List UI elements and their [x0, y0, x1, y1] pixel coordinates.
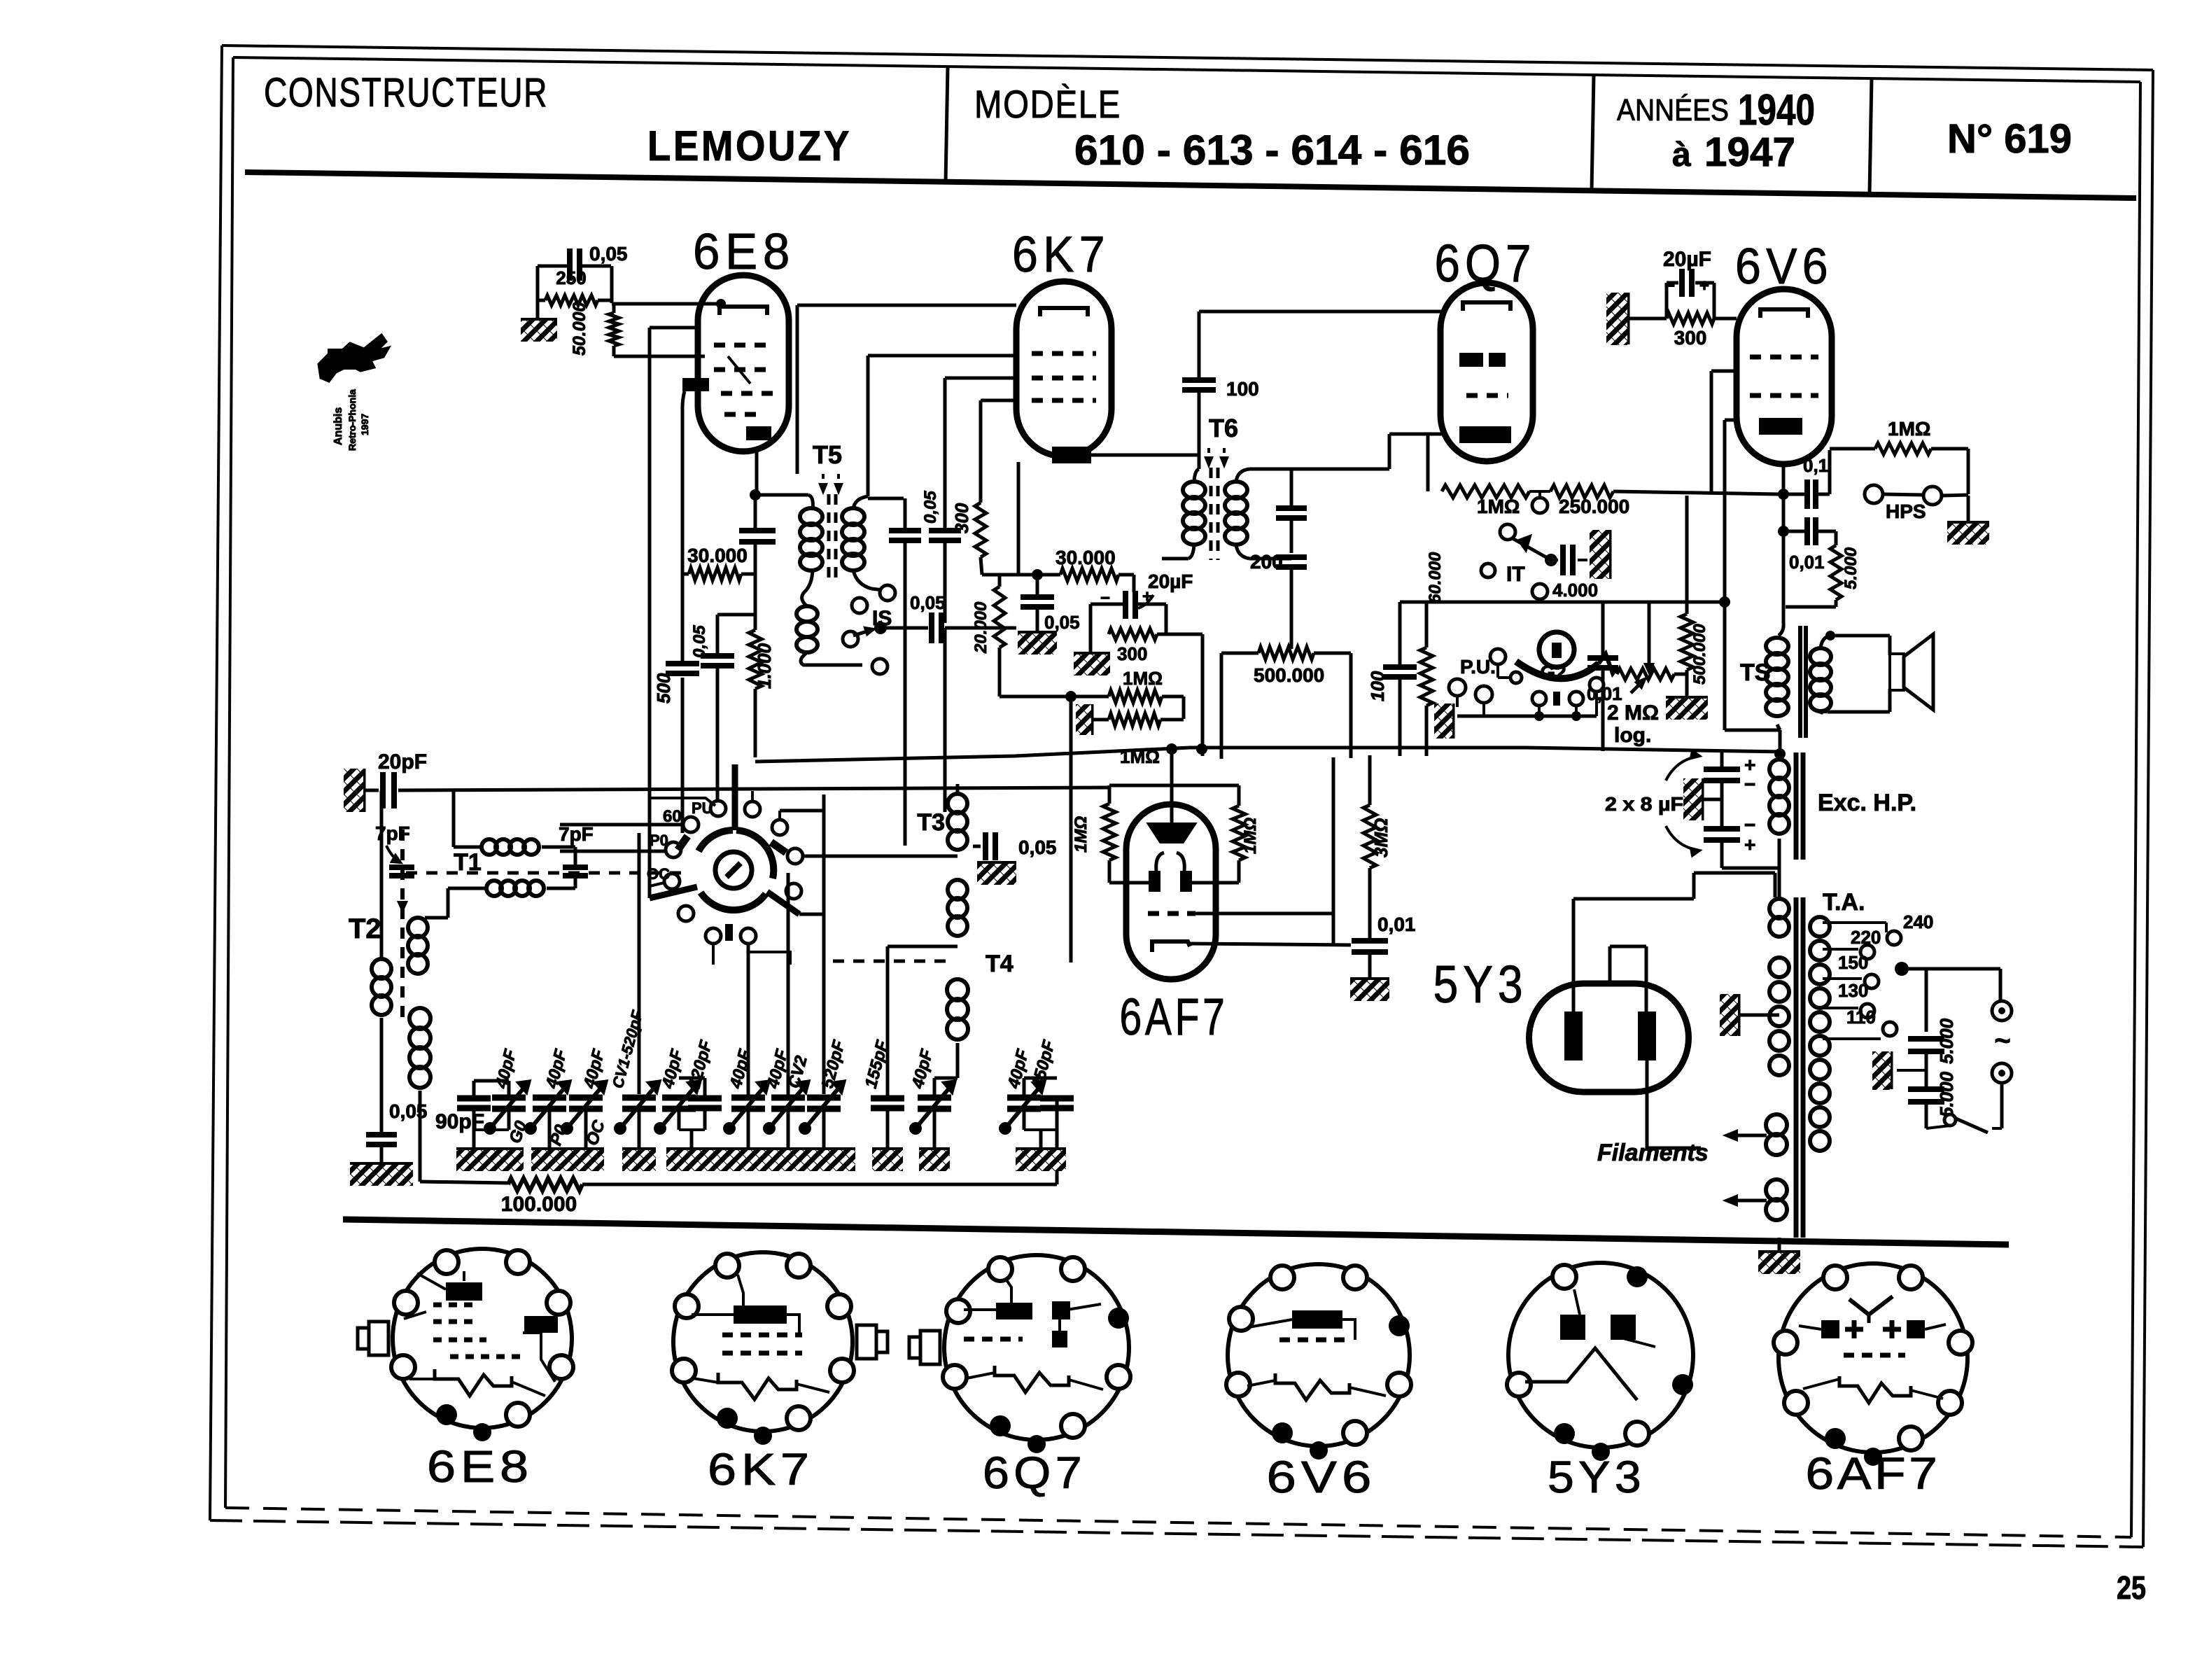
svg-text:20pF: 20pF [378, 750, 427, 773]
svg-text:610 - 613 - 614 - 616: 610 - 613 - 614 - 616 [1074, 127, 1470, 174]
svg-text:5Y3: 5Y3 [1548, 1452, 1646, 1502]
svg-text:120pF: 120pF [685, 1037, 716, 1090]
svg-text:300: 300 [951, 503, 972, 533]
svg-text:1MΩ: 1MΩ [1477, 496, 1520, 517]
svg-text:0,01: 0,01 [1377, 913, 1416, 935]
svg-text:Exc. H.P.: Exc. H.P. [1818, 790, 1916, 816]
svg-text:130: 130 [1838, 980, 1868, 1001]
svg-text:5.000: 5.000 [1936, 1018, 1957, 1064]
svg-text:20.000: 20.000 [972, 601, 990, 654]
svg-text:300: 300 [1674, 327, 1707, 349]
svg-text:0,1: 0,1 [1803, 455, 1828, 476]
svg-text:6AF7: 6AF7 [1806, 1448, 1941, 1499]
svg-text:T3: T3 [917, 809, 945, 836]
svg-text:MODÈLE: MODÈLE [974, 82, 1121, 126]
svg-text:6K7: 6K7 [708, 1444, 814, 1494]
svg-text:Anubis: Anubis [332, 407, 344, 445]
svg-text:P0: P0 [650, 832, 668, 849]
svg-text:1.000: 1.000 [754, 643, 775, 689]
svg-text:1MΩ: 1MΩ [1123, 668, 1163, 689]
svg-text:20µF: 20µF [1663, 248, 1711, 271]
svg-text:0,05: 0,05 [690, 625, 709, 658]
svg-text:à: à [1672, 136, 1691, 174]
svg-text:0,05: 0,05 [589, 243, 628, 265]
svg-text:+: + [1744, 834, 1755, 855]
svg-text:25: 25 [2117, 1569, 2146, 1606]
svg-text:1997: 1997 [359, 414, 370, 435]
svg-text:0,05: 0,05 [910, 592, 946, 613]
svg-text:6K7: 6K7 [1012, 227, 1110, 283]
svg-text:5.000: 5.000 [1936, 1071, 1957, 1117]
svg-text:500.000: 500.000 [1254, 664, 1324, 686]
svg-text:300: 300 [1117, 643, 1147, 664]
svg-text:1MΩ: 1MΩ [1241, 818, 1260, 854]
svg-text:6Q7: 6Q7 [983, 1448, 1086, 1498]
svg-text:2 MΩ: 2 MΩ [1607, 701, 1659, 724]
svg-text:450pF: 450pF [1028, 1037, 1059, 1091]
svg-text:6AF7: 6AF7 [1120, 988, 1228, 1046]
svg-text:50.000: 50.000 [570, 302, 589, 356]
svg-text:500: 500 [653, 673, 674, 703]
svg-text:0,05: 0,05 [1018, 836, 1057, 858]
svg-text:220: 220 [1851, 927, 1881, 948]
svg-text:250.000: 250.000 [1559, 496, 1629, 517]
svg-text:200: 200 [1250, 551, 1283, 573]
svg-text:5Y3: 5Y3 [1433, 955, 1528, 1014]
svg-text:T.A.: T.A. [1823, 889, 1865, 916]
svg-text:Filaments: Filaments [1597, 1140, 1709, 1166]
svg-text:Retro-Phonia: Retro-Phonia [346, 389, 358, 451]
svg-text:0,05: 0,05 [1044, 612, 1080, 633]
svg-text:30.000: 30.000 [687, 545, 748, 566]
svg-text:20µF: 20µF [1148, 570, 1193, 592]
svg-text:IT: IT [1506, 563, 1525, 586]
svg-text:500.000: 500.000 [1690, 624, 1709, 685]
svg-text:log.: log. [1614, 724, 1651, 747]
svg-text:LEMOUZY: LEMOUZY [647, 122, 852, 169]
svg-text:0,01: 0,01 [1789, 552, 1825, 573]
svg-text:240: 240 [1903, 911, 1933, 932]
svg-text:T4: T4 [986, 951, 1014, 977]
svg-text:250: 250 [556, 267, 586, 288]
svg-text:~: ~ [1994, 1025, 2010, 1056]
svg-text:5.000: 5.000 [1842, 547, 1860, 589]
svg-text:T6: T6 [1209, 414, 1238, 442]
svg-text:HPS: HPS [1886, 500, 1926, 522]
svg-text:100: 100 [1226, 378, 1259, 400]
svg-text:150: 150 [1838, 952, 1868, 973]
svg-text:1947: 1947 [1704, 129, 1795, 175]
svg-text:0,05: 0,05 [921, 491, 940, 524]
svg-text:1MΩ: 1MΩ [1888, 418, 1930, 440]
svg-text:T2: T2 [349, 913, 381, 944]
svg-text:2 x 8 µF: 2 x 8 µF [1605, 793, 1683, 815]
svg-text:CONSTRUCTEUR: CONSTRUCTEUR [264, 70, 548, 115]
svg-text:G2: G2 [1540, 661, 1566, 683]
svg-text:110: 110 [1846, 1007, 1876, 1028]
svg-text:6E8: 6E8 [427, 1441, 533, 1492]
svg-text:−: − [1744, 814, 1755, 836]
svg-text:100: 100 [1367, 671, 1388, 701]
svg-text:−: − [1744, 773, 1755, 795]
svg-text:40pF: 40pF [658, 1046, 687, 1091]
svg-text:−: − [1665, 276, 1675, 295]
svg-text:30.000: 30.000 [1056, 547, 1116, 568]
svg-text:7pF: 7pF [559, 823, 594, 845]
svg-text:+: + [1744, 754, 1755, 776]
svg-text:N° 619: N° 619 [1947, 116, 2072, 162]
svg-text:4.000: 4.000 [1552, 580, 1598, 601]
svg-text:1MΩ: 1MΩ [1072, 816, 1091, 853]
svg-text:6V6: 6V6 [1267, 1452, 1377, 1502]
svg-text:40pF: 40pF [726, 1046, 755, 1091]
svg-text:40pF: 40pF [491, 1046, 520, 1091]
svg-text:40pF: 40pF [908, 1046, 937, 1091]
svg-text:100.000: 100.000 [501, 1193, 577, 1216]
svg-text:3MΩ: 3MΩ [1370, 818, 1391, 857]
svg-text:T5: T5 [813, 440, 842, 469]
svg-text:60.000: 60.000 [1426, 552, 1445, 603]
svg-text:6E8: 6E8 [693, 224, 795, 280]
svg-text:ANNÉES: ANNÉES [1617, 93, 1729, 127]
svg-text:+: + [1699, 276, 1709, 295]
svg-text:1940: 1940 [1738, 86, 1815, 134]
